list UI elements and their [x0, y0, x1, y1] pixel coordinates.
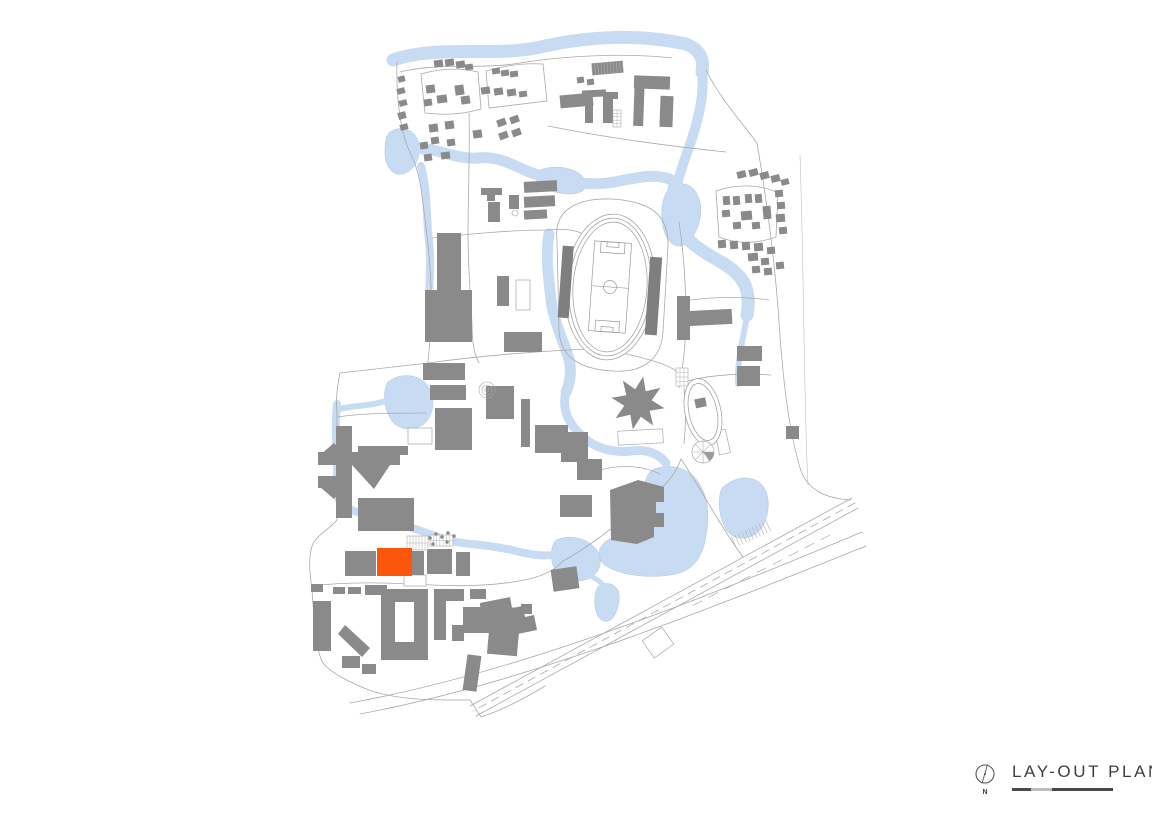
legend: N LAY-OUT PLAN	[972, 762, 1142, 807]
court	[676, 368, 688, 386]
title-block: LAY-OUT PLAN	[1012, 762, 1152, 791]
highlight-layer	[377, 548, 412, 576]
north-label: N	[972, 789, 998, 796]
site-plan-map	[0, 0, 1152, 814]
court	[407, 536, 428, 550]
highlighted-building	[377, 548, 412, 576]
scale-bar-segment	[1012, 788, 1031, 791]
page-title: LAY-OUT PLAN	[1012, 762, 1152, 782]
layout-plan-page: N LAY-OUT PLAN	[0, 0, 1152, 814]
scale-bar-segment	[1052, 788, 1113, 791]
stadium	[555, 211, 665, 364]
court	[613, 110, 621, 127]
fan-plaza	[692, 441, 714, 463]
north-indicator: N	[972, 762, 998, 796]
scale-bar-segment	[1031, 788, 1052, 791]
north-arrow-icon	[972, 762, 998, 788]
scale-bar	[1012, 788, 1113, 791]
